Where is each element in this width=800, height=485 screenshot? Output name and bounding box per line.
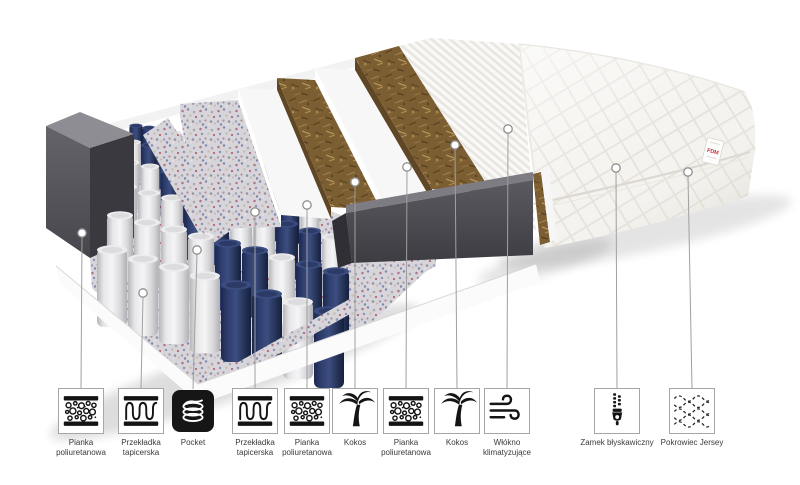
legend-item-climate-fiber — [484, 388, 530, 434]
legend-item-foam-1 — [58, 388, 104, 434]
zipper-icon — [595, 389, 639, 433]
legend-item-coco-2 — [434, 388, 480, 434]
legend-item-interlayer-1 — [118, 388, 164, 434]
wind-icon — [485, 389, 529, 433]
serpentine-icon — [119, 389, 163, 433]
palm-icon — [333, 389, 377, 433]
pocket-spring-icon — [172, 390, 214, 432]
legend-label: Włókno klimatyzujące — [469, 438, 545, 457]
legend-item-foam-3 — [383, 388, 429, 434]
legend-item-coco-1 — [332, 388, 378, 434]
legend-item-interlayer-2 — [232, 388, 278, 434]
legend-label: Zamek błyskawiczny — [579, 438, 655, 448]
serpentine-icon — [233, 389, 277, 433]
legend-item-zipper — [594, 388, 640, 434]
foam-icon — [59, 389, 103, 433]
jersey-fabric-icon — [670, 389, 714, 433]
legend-item-jersey — [669, 388, 715, 434]
legend-label: Pokrowiec Jersey — [654, 438, 730, 448]
foam-icon — [384, 389, 428, 433]
mattress-infographic: FDM — [0, 0, 800, 485]
legend-item-foam-2 — [284, 388, 330, 434]
palm-icon — [435, 389, 479, 433]
foam-icon — [285, 389, 329, 433]
legend-item-pocket — [172, 390, 214, 432]
